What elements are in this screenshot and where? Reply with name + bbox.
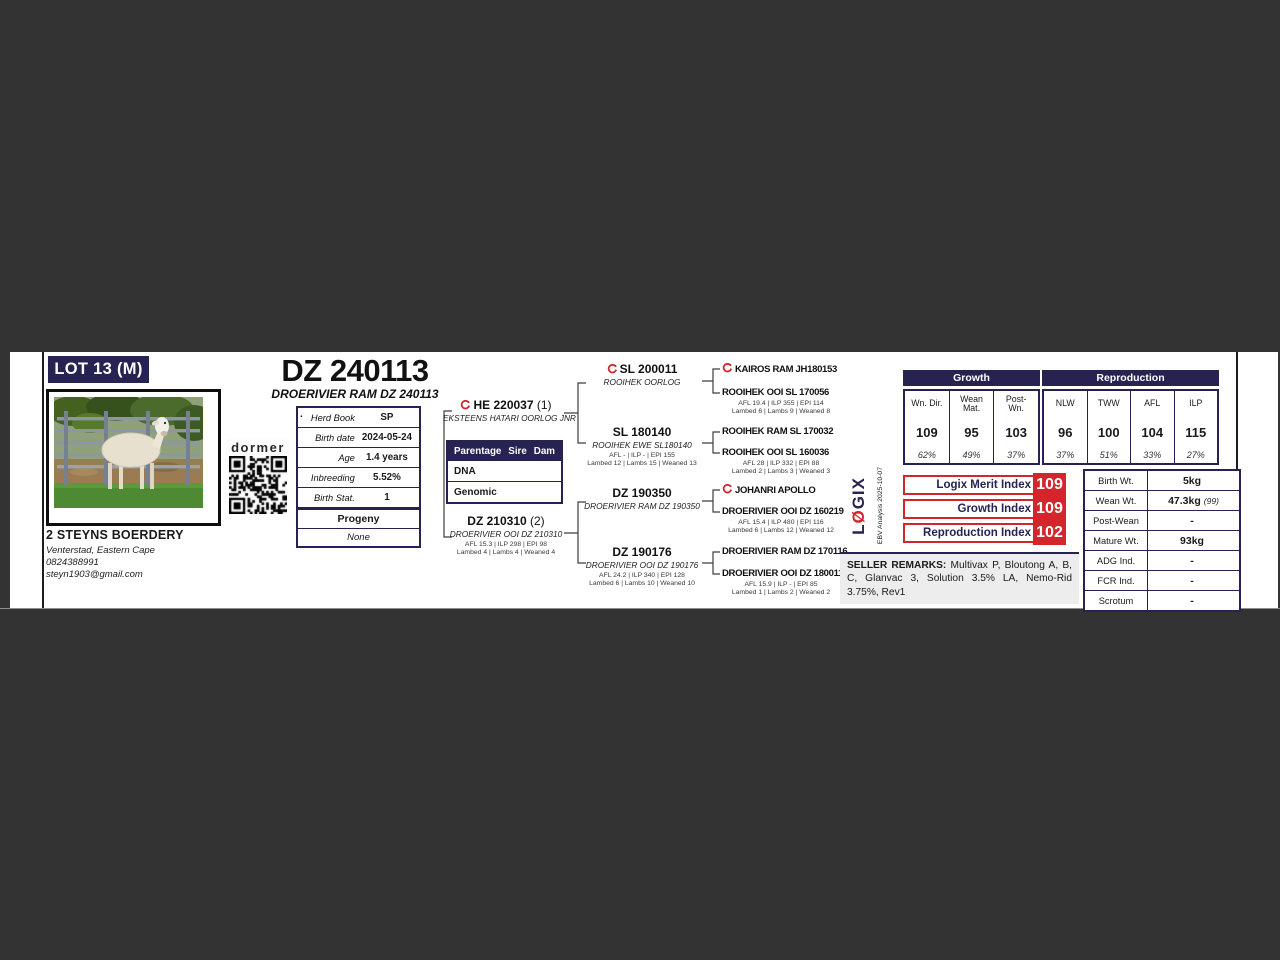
- seller-remarks-label: SELLER REMARKS:: [847, 560, 951, 571]
- dam-id: DZ 210310: [467, 514, 526, 528]
- index-value: 102: [1033, 521, 1066, 545]
- reproduction-index: Reproduction Index 102: [903, 521, 1066, 545]
- pedigree-g4-node: DROERIVIER OOI DZ 160219 AFL 15.4 | ILP …: [722, 506, 840, 534]
- ebv-cell: AFL10433%: [1130, 391, 1174, 463]
- pedigree-sire-dam: SL 180140 ROOIHEK EWE SL180140 AFL - | I…: [577, 425, 707, 467]
- info-label: Herd Book: [298, 413, 355, 423]
- sire-name: EKSTEENS HATARI OORLOG JNR: [443, 413, 569, 423]
- reproduction-header: Reproduction: [1042, 370, 1219, 386]
- growth-table: Wn. Dir.10962% Wean Mat.9549% Post-Wn.10…: [903, 389, 1040, 465]
- info-label: Birth date: [298, 433, 355, 443]
- dam-ebv: AFL 15.3 | ILP 298 | EPI 98: [443, 541, 569, 548]
- weight-row: Birth Wt. 5kg: [1085, 471, 1239, 490]
- pedigree-g4-node: ROOIHEK OOI SL 160036 AFL 28 | ILP 332 |…: [722, 447, 840, 475]
- ebv-cell: TWW10051%: [1087, 391, 1131, 463]
- growth-header: Growth: [903, 370, 1040, 386]
- breeder-location: Venterstad, Eastern Cape: [46, 545, 155, 556]
- lot-badge: LOT 13 (M): [48, 356, 149, 383]
- info-row: Age 1.4 years: [298, 447, 419, 467]
- progeny-box: Progeny None: [296, 508, 421, 548]
- ebv-cell: Wn. Dir.10962%: [905, 391, 949, 463]
- ebv-cell: NLW9637%: [1044, 391, 1087, 463]
- breeder-email: steyn1903@gmail.com: [46, 569, 143, 580]
- weight-row: Mature Wt. 93kg: [1085, 530, 1239, 550]
- parentage-header: Parentage Sire Dam: [448, 442, 561, 461]
- weight-row: Scrotum -: [1085, 590, 1239, 610]
- animal-info-table: Herd Book SP Birth date 2024-05-24 Age 1…: [296, 406, 421, 509]
- index-label: Reproduction Index: [903, 523, 1038, 543]
- ebv-cell: Wean Mat.9549%: [949, 391, 994, 463]
- seller-remarks: SELLER REMARKS: Multivax P, Bloutong A, …: [840, 552, 1079, 604]
- catalog-page: LOT 13 (M): [0, 352, 1280, 609]
- info-row: Herd Book SP: [298, 408, 419, 427]
- animal-title: DZ 240113: [262, 356, 448, 386]
- parentage-col-sire: Sire: [508, 446, 527, 457]
- studbook-icon: [460, 400, 470, 410]
- ebv-cell: ILP11527%: [1174, 391, 1218, 463]
- weights-table: Birth Wt. 5kg Wean Wt. 47.3kg(99) Post-W…: [1083, 469, 1241, 612]
- parentage-col-dam: Dam: [534, 446, 555, 457]
- info-value: 5.52%: [355, 472, 419, 483]
- pedigree-g4-node: KAIROS RAM JH180153: [722, 363, 840, 375]
- dam-lambing: Lambed 4 | Lambs 4 | Weaned 4: [443, 549, 569, 556]
- pedigree-g4-node: JOHANRI APOLLO: [722, 484, 840, 496]
- weight-row: FCR Ind. -: [1085, 570, 1239, 590]
- breeder-phone: 0824388991: [46, 557, 99, 568]
- dam-suffix: (2): [530, 514, 545, 528]
- breeder-name: 2 STEYNS BOERDERY: [46, 528, 184, 542]
- progeny-value: None: [298, 529, 419, 546]
- title-block: DZ 240113 DROERIVIER RAM DZ 240113: [262, 356, 448, 401]
- growth-index: Growth Index 109: [903, 497, 1066, 521]
- pedigree-dam-dam: DZ 190176 DROERIVIER OOI DZ 190176 AFL 2…: [577, 545, 707, 587]
- dam-name: DROERIVIER OOI DZ 210310: [443, 529, 569, 539]
- pedigree-g4-node: ROOIHEK RAM SL 170032: [722, 426, 840, 437]
- index-value: 109: [1033, 473, 1066, 497]
- pedigree-sire: HE 220037 (1) EKSTEENS HATARI OORLOG JNR: [443, 398, 569, 423]
- sheep-photo-illustration: [54, 397, 203, 508]
- pedigree-g4-node: DROERIVIER RAM DZ 170116: [722, 546, 840, 557]
- progeny-title: Progeny: [298, 510, 419, 529]
- info-row: Inbreeding 5.52%: [298, 467, 419, 487]
- ebv-cell: Post-Wn.10337%: [993, 391, 1038, 463]
- page-left-margin: [0, 352, 10, 609]
- info-row: Birth date 2024-05-24: [298, 427, 419, 447]
- info-value: 2024-05-24: [355, 432, 419, 443]
- info-label: Inbreeding: [298, 473, 355, 483]
- logix-o-glyph: Ø: [849, 509, 868, 523]
- parentage-row-dna: DNA: [448, 461, 561, 481]
- weight-row: ADG Ind. -: [1085, 550, 1239, 570]
- page-left-border: [42, 352, 44, 609]
- studbook-icon: [607, 364, 617, 374]
- pedigree-g4-node: DROERIVIER OOI DZ 180011 AFL 15.9 | ILP …: [722, 568, 840, 596]
- index-label: Growth Index: [903, 499, 1038, 519]
- pedigree-sire-sire: SL 200011 ROOIHEK OORLOG: [577, 362, 707, 387]
- index-label: Logix Merit Index: [903, 475, 1038, 495]
- dormer-logo: dormer: [226, 438, 290, 456]
- info-label: Birth Stat.: [298, 493, 355, 503]
- info-value: SP: [355, 412, 419, 423]
- info-label: Age: [298, 453, 355, 463]
- parentage-row-genomic: Genomic: [448, 481, 561, 502]
- info-value: 1: [355, 492, 419, 503]
- reproduction-table: NLW9637% TWW10051% AFL10433% ILP11527%: [1042, 389, 1219, 465]
- ebv-analysis-date: EBV Analysis 2025-10-07: [873, 462, 887, 550]
- animal-photo: [46, 389, 221, 526]
- logix-merit-index: Logix Merit Index 109: [903, 473, 1066, 497]
- weight-row: Post-Wean -: [1085, 510, 1239, 530]
- info-row: Birth Stat. 1: [298, 487, 419, 507]
- animal-subtitle: DROERIVIER RAM DZ 240113: [262, 388, 448, 401]
- sire-suffix: (1): [537, 398, 552, 412]
- weight-row: Wean Wt. 47.3kg(99): [1085, 490, 1239, 510]
- herdbook-bullet: .: [300, 409, 303, 420]
- logix-logo: LØGIX: [843, 462, 875, 550]
- studbook-icon: [722, 484, 732, 494]
- pedigree-dam-sire: DZ 190350 DROERIVIER RAM DZ 190350: [577, 486, 707, 511]
- info-value: 1.4 years: [355, 452, 419, 463]
- qr-code: [229, 456, 287, 514]
- parentage-title: Parentage: [454, 446, 501, 457]
- parentage-box: Parentage Sire Dam DNA Genomic: [446, 440, 563, 504]
- pedigree-dam: DZ 210310 (2) DROERIVIER OOI DZ 210310 A…: [443, 514, 569, 556]
- index-value: 109: [1033, 497, 1066, 521]
- sire-id: HE 220037: [473, 398, 533, 412]
- studbook-icon: [722, 363, 732, 373]
- pedigree-g4-node: ROOIHEK OOI SL 170056 AFL 19.4 | ILP 355…: [722, 387, 840, 415]
